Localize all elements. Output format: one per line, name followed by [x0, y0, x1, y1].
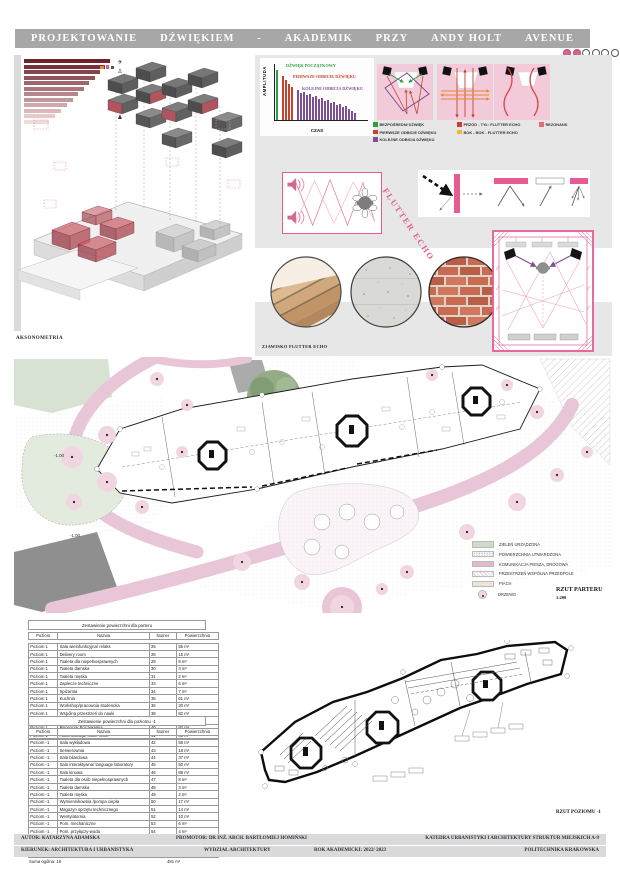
chart-bar	[351, 111, 353, 120]
table-cell: 46	[149, 769, 176, 776]
axon-floating-modules	[108, 62, 242, 158]
site-plan-scale: 1:200	[556, 595, 566, 600]
legend-item: PIERWSZE ODBICIE DŹWIĘKU	[373, 130, 457, 135]
title-word: AKADEMIK	[285, 33, 353, 44]
footer-department: KATEDRA URBANISTYKI I ARCHITEKTURY STRUK…	[425, 836, 599, 841]
axonometric-exploded-drawing	[16, 62, 254, 330]
site-plan-caption: RZUT PARTERU	[556, 587, 602, 593]
chart-bar	[354, 113, 356, 120]
axonometria-caption: AKSONOMETRIA	[16, 336, 63, 341]
legend-label: KOLEJNE ODBICIA DŹWIĘKU	[380, 137, 435, 142]
summary-label: Suma ogólna: 16	[29, 859, 167, 864]
level-minus-1-caption: RZUT POZIOMU -1	[556, 810, 601, 815]
site-legend-label: PRZESTRZEŃ WSPÓLNA PRZEDPOLE	[499, 571, 574, 576]
table-cell: 53	[149, 820, 176, 827]
chart-bar	[327, 100, 329, 120]
materials-caption: ZJAWISKO FLUTTER ECHO	[262, 344, 327, 349]
column-header: Nazwa	[58, 728, 149, 735]
table-cell: Poziom -1	[29, 769, 58, 776]
table-cell: 10 m²	[177, 813, 218, 820]
table-cell: Sala wykładowa	[58, 739, 149, 746]
flutter-echo-front-back-diagram	[437, 64, 493, 120]
column-header: Numer	[149, 728, 176, 735]
site-legend-item: POWIERZCHNIA UTWARDZONA	[472, 551, 574, 558]
column-header: Poziom	[29, 728, 58, 735]
legend-swatch	[457, 122, 462, 127]
table-cell: Wymiennikownia /pompa ciepła	[58, 798, 149, 805]
table-cell: 8 m²	[177, 776, 218, 783]
table-cell: Poziom 1	[29, 673, 58, 680]
site-legend-swatch-green	[472, 541, 494, 548]
room-section-diagram	[492, 230, 594, 352]
legend-swatch	[457, 130, 462, 135]
table-cell: Poziom -1	[29, 754, 58, 761]
footer-item: ROK AKADEMICKI: 2022/ 2023	[314, 848, 386, 853]
table-cell: Sala interaktywna/ language laboratory	[58, 761, 149, 768]
legend-label: PRZÓD - TYŁ: FLUTTER ECHO	[464, 122, 521, 127]
elevation-label: -1.00	[70, 533, 81, 538]
title-word: AVENUE	[525, 33, 574, 44]
table-cell: Toaleta dla osób niepełnosprawnych	[58, 776, 149, 783]
acoustic-behavior-diagrams	[418, 170, 590, 217]
chart-bar	[291, 87, 293, 120]
table-cell: 20 m²	[177, 702, 218, 709]
chart-bar	[348, 109, 350, 120]
table-cell: Sala kinowa	[58, 769, 149, 776]
table-cell: 31	[149, 673, 176, 680]
table-cell: Pom. mechaniczne	[58, 820, 149, 827]
table-row: Poziom -1Sala wykładowa4258 m²	[29, 739, 219, 746]
table-cell: Kuchnia	[58, 695, 149, 702]
table-cell: 43	[149, 746, 176, 753]
table-cell: 34	[149, 687, 176, 694]
table-cell: 6 m²	[177, 820, 218, 827]
table-cell: Toaleta dla niepełnosprawnych	[58, 658, 149, 665]
chart-bar	[303, 92, 305, 121]
table-cell: Poziom -1	[29, 761, 58, 768]
column-header: Powierzchnia	[177, 632, 218, 639]
chart-bar	[318, 99, 320, 120]
axon-mini-icons	[100, 65, 114, 69]
table-cell: Toaleta damska	[58, 665, 149, 672]
site-legend-swatch-common	[472, 571, 494, 578]
table-cell: 51	[149, 805, 176, 812]
table-header: PoziomNazwaNumerPowierzchnia	[28, 632, 219, 640]
table-row: Poziom -1Wentylatornia5210 m²	[29, 813, 219, 820]
legend-swatch	[539, 122, 544, 127]
table-row: Poziom -1Serwerownia4318 m²	[29, 746, 219, 753]
table-cell: 28	[149, 650, 176, 657]
footer-item: WYDZIAŁ ARCHITEKTURY	[204, 848, 271, 853]
table-cell: Sala wielofunkcyjna/ relaks	[58, 643, 149, 650]
table-cell: 61 m²	[177, 695, 218, 702]
sound-reflections-diagram	[377, 64, 433, 120]
site-legend-swatch-pink	[472, 561, 494, 568]
table-cell: 33	[149, 680, 176, 687]
table-row: Poziom 1Spiżarnia347 m²	[29, 687, 219, 694]
table-cell: Poziom 1	[29, 702, 58, 709]
table-row: Poziom -1Sala interaktywna/ language lab…	[29, 761, 219, 768]
level-minus-1-plan-drawing	[255, 640, 615, 820]
poster-title-bar: PROJEKTOWANIEDŹWIĘKIEM-AKADEMIKPRZYANDY …	[15, 29, 590, 48]
table-cell: Serwerownia	[58, 746, 149, 753]
title-word: PRZY	[376, 33, 409, 44]
legend-label: BOK - BOK - FLUTTER ECHO	[464, 130, 518, 135]
chart-bar	[276, 70, 278, 120]
legend-label: REZONANS	[546, 122, 568, 127]
table-cell: 2 m²	[177, 673, 218, 680]
table-cell: 58 m²	[177, 739, 218, 746]
table-cell: Poziom 1	[29, 687, 58, 694]
table-cell: 17 m²	[177, 798, 218, 805]
table-row: Poziom -1Wymiennikownia /pompa ciepła501…	[29, 798, 219, 805]
wood-material-circle	[270, 256, 342, 328]
table-cell: Poziom -1	[29, 813, 58, 820]
table-title: Zestawienie powierzchni dla poziomu -1	[28, 716, 206, 726]
table-cell: 36	[149, 702, 176, 709]
chart-bar	[339, 104, 341, 120]
elevation-label: -1.00	[54, 453, 65, 458]
table-cell: 52	[149, 813, 176, 820]
legend-label: BEZPOŚREDNI DŹWIĘK	[380, 122, 425, 127]
table-cell: 3 m²	[177, 665, 218, 672]
x-axis-label: CZAS	[260, 128, 374, 133]
legend-item: REZONANS	[539, 122, 599, 127]
table-cell: 25	[149, 643, 176, 650]
table-title: Zestawienie powierzchni dla parteru	[28, 620, 206, 630]
acoustics-legend: BEZPOŚREDNI DŹWIĘKPIERWSZE ODBICIE DŹWIĘ…	[373, 122, 605, 146]
legend-swatch	[373, 130, 378, 135]
table-row: Poziom -1Toaleta damska483 m²	[29, 783, 219, 790]
table-cell: 8 m²	[177, 658, 218, 665]
table-cell: Poziom -1	[29, 820, 58, 827]
legend-swatch	[373, 137, 378, 142]
chart-bar	[336, 105, 338, 120]
annotation-later-reflections: KOLEJNE ODBICIA DŹWIĘKU	[302, 86, 363, 91]
footer-item: POLITECHNIKA KRAKOWSKA	[524, 848, 599, 853]
legend-label: PIERWSZE ODBICIE DŹWIĘKU	[380, 130, 437, 135]
site-legend-swatch-tree	[478, 590, 487, 599]
table-cell: Poziom -1	[29, 739, 58, 746]
table-row: Poziom 1Delivery room2815 m²	[29, 650, 219, 657]
chart-bar	[309, 94, 311, 120]
table-cell: Poziom -1	[29, 746, 58, 753]
footer-author: AUTOR: KATARZYNA ADAMSKA	[21, 836, 100, 841]
footer-info-bars: AUTOR: KATARZYNA ADAMSKA PROMOTOR: DR IN…	[14, 834, 606, 857]
table-row: Poziom 1Toaleta dla niepełnosprawnych298…	[29, 658, 219, 665]
table-row: Poziom -1Toaleta męska492 m²	[29, 791, 219, 798]
resonance-diagram	[494, 64, 550, 120]
chart-bar	[330, 103, 332, 120]
table-cell: Poziom 1	[29, 643, 58, 650]
column-header: Nazwa	[58, 632, 149, 639]
table-cell: 37 m²	[177, 754, 218, 761]
table-cell: 49	[149, 791, 176, 798]
brick-material-circle	[428, 256, 500, 328]
table-cell: Toaleta męska	[58, 673, 149, 680]
chart-bar	[345, 106, 347, 120]
table-cell: 18 m²	[177, 746, 218, 753]
table-cell: Sala bilardowa	[58, 754, 149, 761]
footer-item: KIERUNEK: ARCHITEKTURA I URBANISTYKA	[21, 848, 133, 853]
amplitude-time-chart: AMPLITUDA DŹWIĘK POCZĄTKOWY PIERWSZE ODB…	[260, 58, 374, 136]
site-legend-item: PRZESTRZEŃ WSPÓLNA PRZEDPOLE	[472, 571, 574, 578]
table-cell: Zaplecze techniczne	[58, 680, 149, 687]
table-cell: Delivery room	[58, 650, 149, 657]
table-cell: Spiżarnia	[58, 687, 149, 694]
listener-head-icon	[353, 188, 377, 218]
table-cell: 47	[149, 776, 176, 783]
table-cell: Poziom -1	[29, 791, 58, 798]
table-cell: 15 m²	[177, 650, 218, 657]
summary-value: 481 m²	[167, 859, 205, 864]
table-row: Poziom 1Kuchnia3561 m²	[29, 695, 219, 702]
table-cell: Workshop/pracownia studencka	[58, 702, 149, 709]
x-axis	[274, 120, 368, 121]
table-row: Poziom 1Toaleta damska303 m²	[29, 665, 219, 672]
site-legend-item: KOMUNIKACJA PIESZA, DROGOWA	[472, 561, 574, 568]
table-row: Poziom -1Toaleta dla osób niepełnosprawn…	[29, 776, 219, 783]
table-cell: 45	[149, 761, 176, 768]
chart-bar	[288, 84, 290, 120]
chart-bar	[324, 101, 326, 120]
acoustics-legend-column: PRZÓD - TYŁ: FLUTTER ECHOBOK - BOK - FLU…	[457, 122, 539, 137]
table-cell: Poziom -1	[29, 783, 58, 790]
annotation-first-reflection: PIERWSZE ODBICIE DŹWIĘKU	[293, 74, 356, 79]
footer-promoter: PROMOTOR: DR INŻ. ARCH. BARTŁOMIEJ HOMIŃ…	[176, 836, 307, 841]
table-cell: 3 m²	[177, 783, 218, 790]
table-cell: 42	[149, 739, 176, 746]
chart-bar	[297, 90, 299, 120]
title-word: PROJEKTOWANIE	[31, 33, 137, 44]
table-cell: Wentylatornia	[58, 813, 149, 820]
y-axis-label: AMPLITUDA	[262, 66, 267, 96]
table-cell: 30	[149, 665, 176, 672]
table-row: Poziom 1Sala wielofunkcyjna/ relaks2555 …	[29, 643, 219, 650]
table-cell: 48	[149, 783, 176, 790]
acoustics-legend-column: BEZPOŚREDNI DŹWIĘKPIERWSZE ODBICIE DŹWIĘ…	[373, 122, 457, 145]
table-cell: Toaleta damska	[58, 783, 149, 790]
table-cell: 50	[149, 798, 176, 805]
poster-board: PROJEKTOWANIEDŹWIĘKIEM-AKADEMIKPRZYANDY …	[0, 0, 620, 878]
legend-item: KOLEJNE ODBICIA DŹWIĘKU	[373, 137, 457, 142]
table-header: PoziomNazwaNumerPowierzchnia	[28, 728, 219, 736]
acoustics-legend-column: REZONANS	[539, 122, 599, 130]
chart-bar	[342, 107, 344, 120]
site-legend-swatch-paved	[472, 551, 494, 558]
floor-absorbers	[508, 334, 578, 340]
table-cell: Toaleta męska	[58, 791, 149, 798]
table-cell: 7 m²	[177, 687, 218, 694]
chart-bar	[312, 97, 314, 120]
site-plan-legend: ZIELEŃ URZĄDZONAPOWIERZCHNIA UTWARDZONAK…	[472, 541, 574, 603]
title-word: ANDY HOLT	[431, 33, 502, 44]
legend-swatch	[373, 122, 378, 127]
table-cell: 6 m²	[177, 680, 218, 687]
table-cell: 2 m²	[177, 791, 218, 798]
site-legend-label: DRZEWO	[498, 592, 516, 597]
table-row: Poziom -1Magazyn sprzętu technicznego511…	[29, 805, 219, 812]
chart-bar	[285, 80, 287, 120]
table-row: Poziom 1Zaplecze techniczne336 m²	[29, 680, 219, 687]
table-row: Poziom -1Sala bilardowa4437 m²	[29, 754, 219, 761]
flutter-echo-corridor-diagram	[282, 172, 382, 234]
table-cell: Poziom -1	[29, 805, 58, 812]
table-cell: Poziom 1	[29, 665, 58, 672]
annotation-direct-sound: DŹWIĘK POCZĄTKOWY	[286, 63, 336, 68]
title-word: DŹWIĘKIEM	[160, 33, 234, 44]
legend-item: BEZPOŚREDNI DŹWIĘK	[373, 122, 457, 127]
table-cell: 88 m²	[177, 769, 218, 776]
table-cell: Poziom 1	[29, 658, 58, 665]
speaker-icon	[287, 178, 303, 192]
table-row: Poziom 1Toaleta męska312 m²	[29, 673, 219, 680]
y-axis	[274, 64, 275, 121]
column-header: Powierzchnia	[177, 728, 218, 735]
table-row: Poziom -1Sala kinowa4688 m²	[29, 769, 219, 776]
chart-bar	[282, 76, 284, 120]
table-cell: Poziom 1	[29, 680, 58, 687]
site-legend-swatch-sand	[472, 581, 494, 588]
column-header: Poziom	[29, 632, 58, 639]
concrete-material-circle	[350, 256, 422, 328]
footer-row-1: AUTOR: KATARZYNA ADAMSKA PROMOTOR: DR IN…	[14, 834, 606, 846]
table-cell: Poziom 1	[29, 695, 58, 702]
table-cell: 55 m²	[177, 643, 218, 650]
table-cell: 35	[149, 695, 176, 702]
table-cell: 14 m²	[177, 805, 218, 812]
chart-bar	[333, 102, 335, 120]
column-header: Numer	[149, 632, 176, 639]
site-legend-item: ZIELEŃ URZĄDZONA	[472, 541, 574, 548]
table-cell: Poziom -1	[29, 798, 58, 805]
table-row: Poziom -1Pom. mechaniczne536 m²	[29, 820, 219, 827]
title-word: -	[257, 33, 262, 44]
table-cell: Poziom 1	[29, 650, 58, 657]
footer-row-2: KIERUNEK: ARCHITEKTURA I URBANISTYKAWYDZ…	[14, 846, 606, 857]
table-cell: 29	[149, 658, 176, 665]
chart-bar	[306, 95, 308, 120]
table-cell: Magazyn sprzętu technicznego	[58, 805, 149, 812]
site-legend-label: KOMUNIKACJA PIESZA, DROGOWA	[499, 562, 568, 567]
chart-bar	[315, 96, 317, 120]
site-legend-label: PIACH	[499, 581, 512, 586]
site-legend-label: ZIELEŃ URZĄDZONA	[499, 542, 540, 547]
axon-pink-dashed-boxes	[34, 120, 240, 208]
table-summary: Suma ogólna: 16481 m²	[28, 859, 206, 864]
chart-bar	[321, 98, 323, 120]
table-row: Poziom 1Workshop/pracownia studencka3620…	[29, 702, 219, 709]
table-cell: 44	[149, 754, 176, 761]
legend-item: BOK - BOK - FLUTTER ECHO	[457, 130, 539, 135]
table-cell: Poziom -1	[29, 776, 58, 783]
legend-item: PRZÓD - TYŁ: FLUTTER ECHO	[457, 122, 539, 127]
chart-bar	[300, 93, 302, 120]
table-cell: 50 m²	[177, 761, 218, 768]
site-legend-label: POWIERZCHNIA UTWARDZONA	[499, 552, 561, 557]
